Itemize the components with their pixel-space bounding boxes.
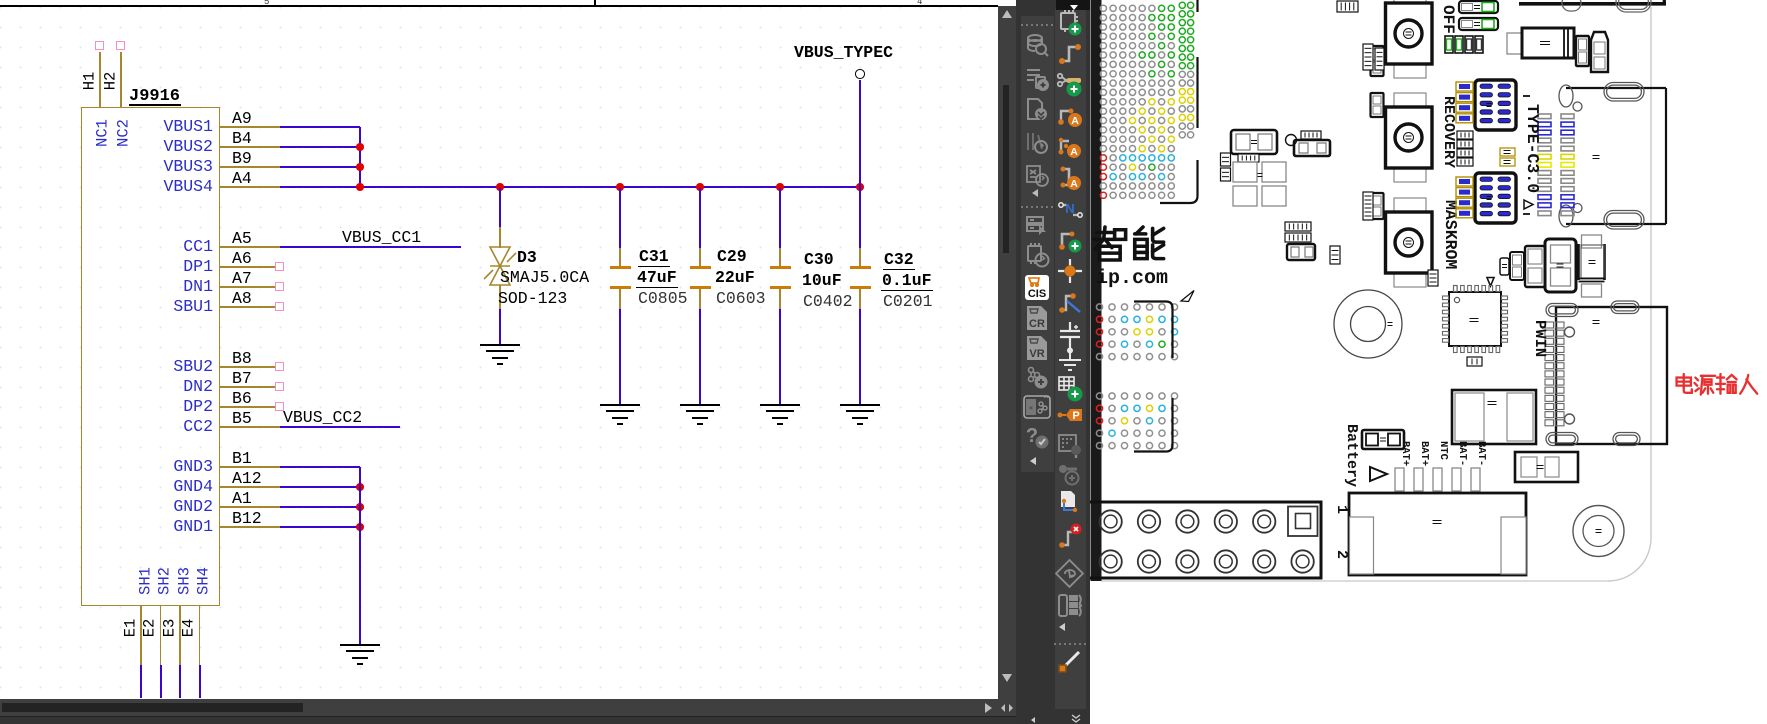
svg-text:RECOVERY: RECOVERY (1440, 96, 1457, 168)
svg-text:ip.com: ip.com (1096, 267, 1168, 290)
svg-text:P: P (1072, 410, 1079, 422)
svg-text:TYPE-C3.0: TYPE-C3.0 (1523, 104, 1542, 193)
svg-text:A: A (1070, 178, 1078, 190)
svg-text:2: 2 (1333, 550, 1350, 559)
svg-text:BAT+: BAT+ (1399, 441, 1411, 466)
svg-text:CIS: CIS (1028, 288, 1046, 300)
svg-text:Battery: Battery (1343, 424, 1360, 487)
svg-text:«: « (1029, 403, 1033, 412)
svg-text:NTC: NTC (1437, 441, 1449, 461)
svg-text:N: N (1065, 201, 1074, 216)
svg-text:A: A (1071, 115, 1079, 127)
svg-text:VR: VR (1029, 348, 1044, 360)
svg-text:MASKROM: MASKROM (1441, 200, 1460, 269)
svg-text:OFF: OFF (1439, 5, 1457, 34)
svg-text:BAT+: BAT+ (1418, 441, 1430, 466)
svg-text:PWIN: PWIN (1531, 320, 1549, 357)
svg-text:CR: CR (1029, 318, 1045, 330)
svg-text:1: 1 (1333, 505, 1350, 514)
svg-text:A: A (1070, 146, 1078, 158)
